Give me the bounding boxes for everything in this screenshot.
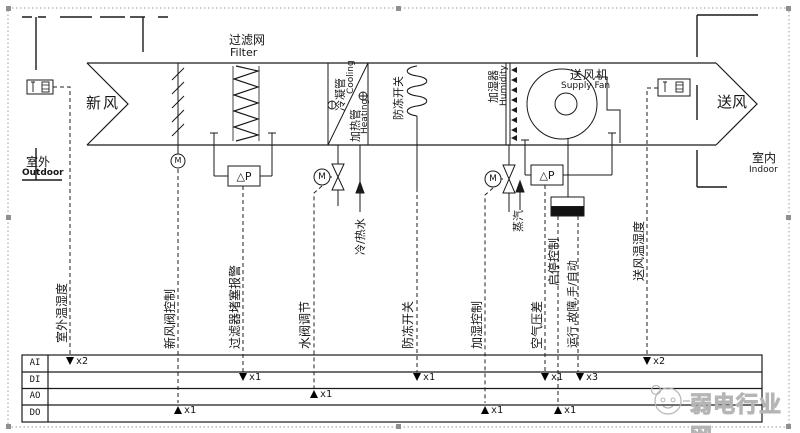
ahu-duct bbox=[87, 63, 757, 145]
heating-label-en: Heating bbox=[361, 99, 370, 134]
chw-pipe-label: 冷/热水 bbox=[355, 218, 366, 255]
outdoor-label-en: Outdoor bbox=[22, 169, 64, 178]
io-point-di-run: x3 bbox=[576, 373, 598, 383]
fresh-air-label: 新风 bbox=[86, 96, 120, 111]
io-row-ai: AI bbox=[24, 359, 46, 368]
io-point-di-freeze: x1 bbox=[413, 373, 435, 383]
filter-dp-label: △P bbox=[228, 171, 260, 182]
outdoor-label-zh: 室外 bbox=[26, 156, 50, 168]
io-point-di-filter: x1 bbox=[239, 373, 261, 383]
signal-start-stop: 启停控制 bbox=[548, 238, 560, 286]
supply-air-sensor bbox=[658, 79, 690, 96]
fan-label-zh: 送风机 bbox=[570, 69, 609, 81]
fan-dp-label: △P bbox=[531, 170, 563, 181]
io-point-di-airdp: x1 bbox=[541, 373, 563, 383]
io-point-ai-supply: x2 bbox=[643, 357, 665, 367]
cooling-label-en: Cooling bbox=[347, 60, 356, 94]
io-row-ao: AO bbox=[24, 392, 46, 401]
selection-handles[interactable] bbox=[6, 6, 791, 429]
chw-pipe bbox=[356, 145, 364, 212]
down-arrow-icon bbox=[413, 373, 421, 381]
humidifier-label-zh: 加湿器 bbox=[488, 70, 499, 103]
down-arrow-icon bbox=[643, 357, 651, 365]
indoor-label-en: Indoor bbox=[749, 166, 778, 175]
fan-starter bbox=[551, 197, 584, 216]
water-valve-motor-label: M bbox=[314, 173, 330, 182]
humidifier-label-en: Humidity bbox=[500, 65, 509, 106]
io-point-ai-outdoor: x2 bbox=[66, 357, 88, 367]
cooling-label-zh: 冷凝管 bbox=[335, 78, 346, 111]
io-row-do: DO bbox=[24, 409, 46, 418]
io-point-ao-watervalve: x1 bbox=[310, 390, 332, 400]
steam-pipe bbox=[516, 181, 524, 210]
io-point-do-damper: x1 bbox=[174, 406, 196, 416]
signal-run-fault-auto: 运行,故障,手/自动 bbox=[567, 260, 578, 348]
outdoor-air-sensor bbox=[27, 80, 53, 94]
io-point-do-startstop: x1 bbox=[554, 406, 576, 416]
damper-motor-label: M bbox=[171, 157, 185, 165]
up-arrow-icon bbox=[481, 406, 489, 414]
page-border bbox=[8, 8, 789, 427]
fan-label-en: Supply Fan bbox=[561, 82, 610, 91]
signal-outdoor-th: 室外温湿度 bbox=[56, 283, 68, 343]
signal-air-dp: 空气压差 bbox=[531, 301, 543, 349]
steam-pipe-label: 蒸汽 bbox=[513, 210, 524, 232]
steam-valve-motor-label: M bbox=[485, 175, 501, 184]
fresh-air-damper bbox=[172, 63, 184, 145]
up-arrow-icon bbox=[174, 406, 182, 414]
watermark: 弱电行业网 bbox=[646, 381, 796, 421]
up-arrow-icon bbox=[310, 390, 318, 398]
up-arrow-icon bbox=[554, 406, 562, 414]
signal-supply-th: 送风温湿度 bbox=[633, 221, 645, 281]
filter-label-en: Filter bbox=[230, 47, 257, 58]
freeze-label-zh: 防冻开关 bbox=[393, 76, 404, 120]
signal-freeze-switch: 防冻开关 bbox=[402, 301, 414, 349]
down-arrow-icon bbox=[576, 373, 584, 381]
freeze-switch bbox=[407, 66, 427, 188]
io-row-di: DI bbox=[24, 376, 46, 385]
signal-filter-alarm: 过滤器堵塞报警 bbox=[229, 265, 241, 349]
down-arrow-icon bbox=[541, 373, 549, 381]
signal-water-valve: 水阀调节 bbox=[299, 301, 311, 349]
ahu-schematic-diagram: 过滤网 Filter 新风 送风 室外 Outdoor 室内 Indoor 送风… bbox=[0, 0, 800, 433]
io-point-do-humidify: x1 bbox=[481, 406, 503, 416]
supply-air-label: 送风 bbox=[717, 95, 747, 110]
signal-humidify-ctrl: 加湿控制 bbox=[471, 301, 483, 349]
watermark-text: 弱电行业网 bbox=[690, 387, 796, 433]
indoor-label-zh: 室内 bbox=[752, 152, 776, 164]
filter-label-zh: 过滤网 bbox=[229, 34, 265, 46]
signal-fresh-air-damper: 新风阀控制 bbox=[164, 289, 176, 349]
filter-element bbox=[233, 66, 259, 141]
down-arrow-icon bbox=[66, 357, 74, 365]
down-arrow-icon bbox=[239, 373, 247, 381]
